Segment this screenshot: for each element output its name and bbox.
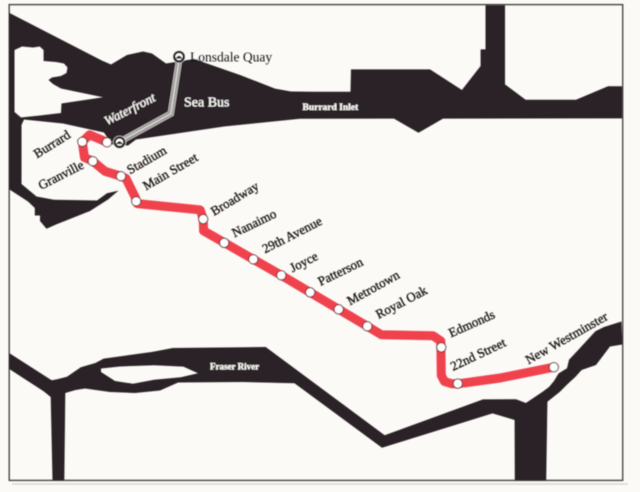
svg-text:Burrard Inlet: Burrard Inlet [303, 103, 360, 113]
svg-text:Fraser River: Fraser River [210, 361, 259, 371]
svg-text:Burrard: Burrard [31, 127, 74, 161]
svg-text:Broadway: Broadway [208, 178, 262, 219]
svg-text:Joyce: Joyce [287, 248, 320, 275]
svg-text:Lonsdale Quay: Lonsdale Quay [190, 50, 272, 65]
svg-text:22nd Street: 22nd Street [448, 335, 509, 374]
svg-text:Nanaimo: Nanaimo [229, 206, 278, 240]
svg-text:Sea Bus: Sea Bus [184, 96, 230, 111]
svg-text:Granville: Granville [36, 157, 87, 193]
svg-text:Patterson: Patterson [315, 254, 366, 289]
svg-text:Edmonds: Edmonds [446, 307, 497, 341]
